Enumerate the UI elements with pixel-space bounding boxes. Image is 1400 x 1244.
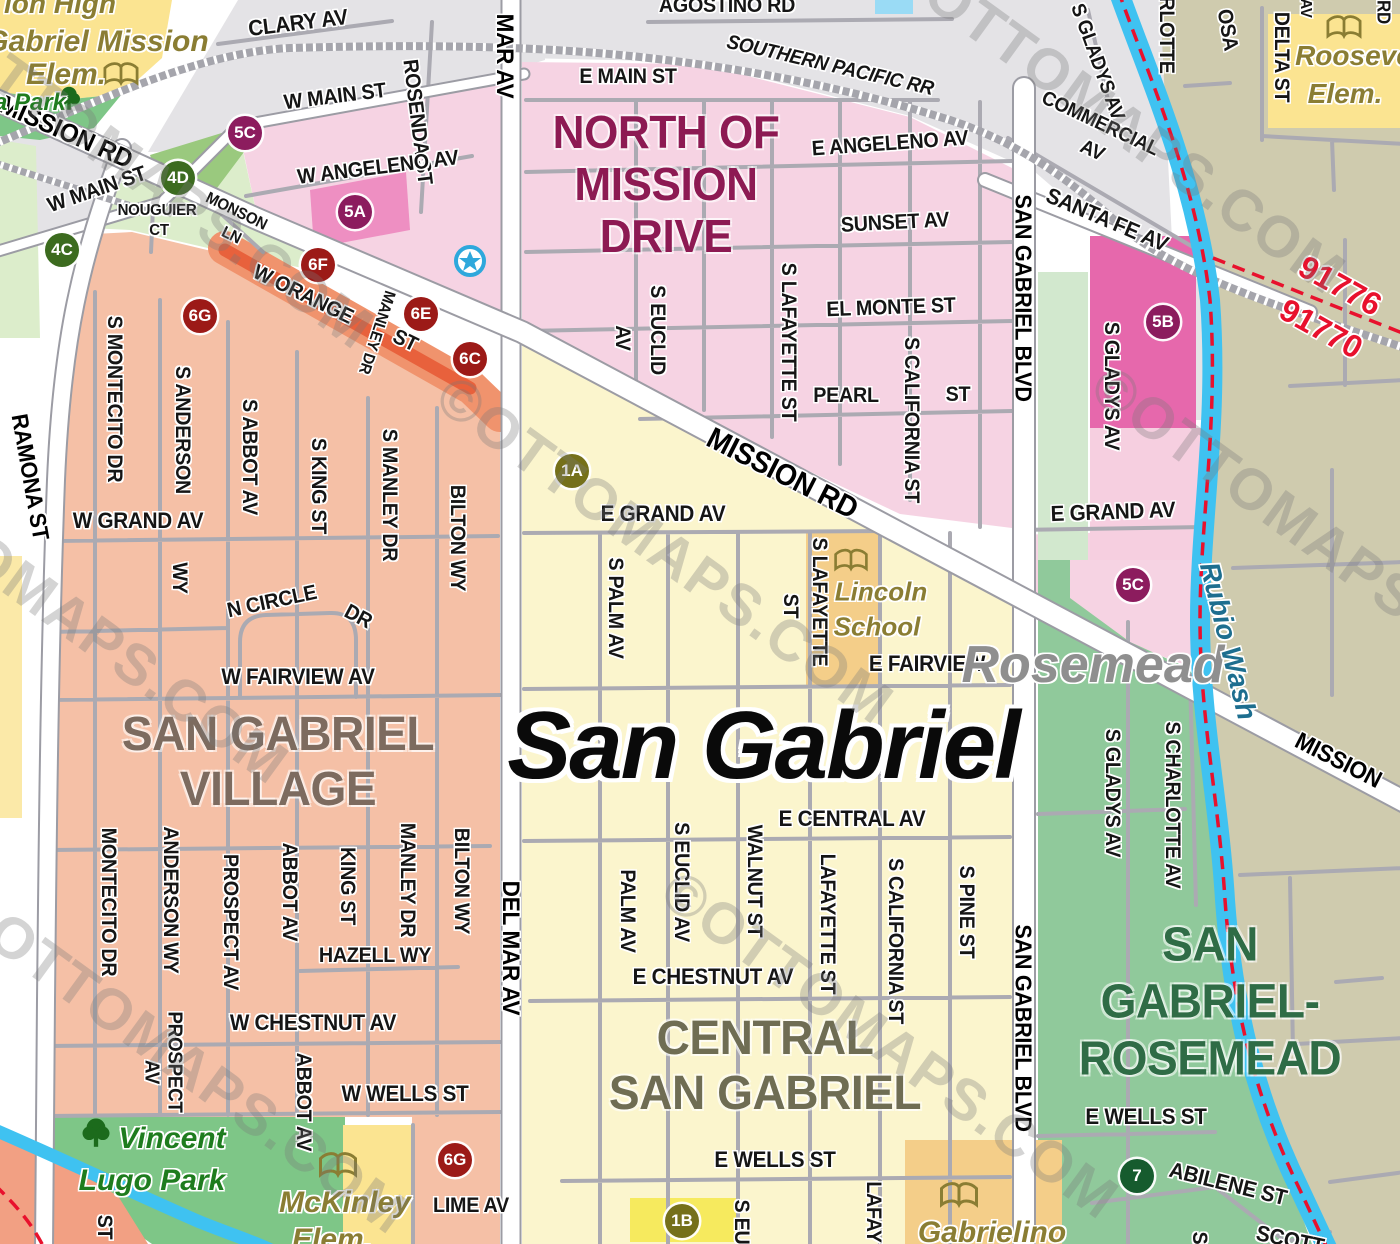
region-ltpink-below-5b: [1090, 428, 1202, 560]
region-lincoln-block: [806, 532, 880, 688]
region-mckinley-yellow: [343, 1125, 413, 1244]
region-1b-block: [630, 1198, 738, 1242]
region-salmon-lime: [412, 1117, 500, 1244]
region-roosevelt-yellow: [1268, 14, 1400, 128]
region-ltgreen-east: [1038, 272, 1088, 560]
region-gabrielino-block: [905, 1140, 1062, 1244]
map-graphics: [0, 0, 1400, 1244]
region-pale-strip-left: [0, 556, 22, 818]
map-canvas: CLARY AVAGOSTINO RDSOUTHERN PACIFIC RRMI…: [0, 0, 1400, 1244]
star-landmark-icon: [456, 247, 484, 275]
pond: [875, 0, 913, 14]
